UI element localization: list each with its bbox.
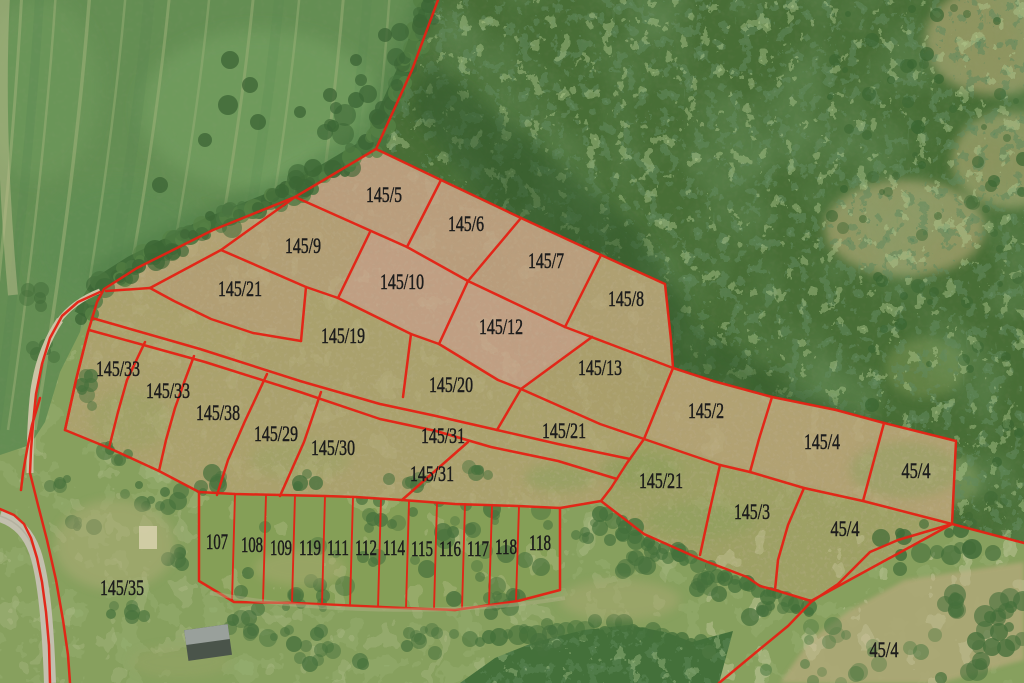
svg-text:118: 118 <box>495 534 517 559</box>
svg-text:145/31: 145/31 <box>421 423 465 448</box>
svg-text:145/33: 145/33 <box>96 356 140 381</box>
svg-text:145/21: 145/21 <box>542 418 586 443</box>
svg-text:145/2: 145/2 <box>688 398 724 423</box>
svg-text:145/9: 145/9 <box>285 233 321 258</box>
svg-text:45/4: 45/4 <box>902 458 931 483</box>
svg-text:145/10: 145/10 <box>380 269 424 294</box>
svg-text:117: 117 <box>467 536 489 561</box>
svg-text:145/13: 145/13 <box>578 355 622 380</box>
svg-text:111: 111 <box>327 535 349 560</box>
svg-text:112: 112 <box>355 535 377 560</box>
svg-text:119: 119 <box>299 535 321 560</box>
svg-text:145/20: 145/20 <box>429 372 473 397</box>
svg-text:114: 114 <box>383 535 405 560</box>
svg-text:107: 107 <box>206 529 228 554</box>
svg-text:145/31: 145/31 <box>410 461 454 486</box>
svg-text:145/5: 145/5 <box>366 182 402 207</box>
svg-text:145/7: 145/7 <box>528 248 564 273</box>
svg-text:116: 116 <box>439 536 461 561</box>
svg-text:109: 109 <box>270 535 292 560</box>
svg-text:145/35: 145/35 <box>100 575 144 600</box>
svg-text:108: 108 <box>241 532 263 557</box>
svg-text:118: 118 <box>529 530 551 555</box>
svg-text:145/21: 145/21 <box>218 276 262 301</box>
svg-text:145/38: 145/38 <box>196 400 240 425</box>
svg-text:145/29: 145/29 <box>254 421 298 446</box>
svg-text:145/3: 145/3 <box>734 499 770 524</box>
svg-text:145/4: 145/4 <box>804 429 840 454</box>
svg-text:145/6: 145/6 <box>448 211 484 236</box>
svg-text:145/12: 145/12 <box>479 314 523 339</box>
svg-text:115: 115 <box>411 536 433 561</box>
svg-text:145/21: 145/21 <box>639 468 683 493</box>
svg-text:145/33: 145/33 <box>146 378 190 403</box>
svg-text:145/30: 145/30 <box>311 435 355 460</box>
svg-text:145/19: 145/19 <box>321 323 365 348</box>
svg-text:145/8: 145/8 <box>608 286 644 311</box>
svg-text:45/4: 45/4 <box>870 637 899 662</box>
svg-text:45/4: 45/4 <box>831 516 860 541</box>
